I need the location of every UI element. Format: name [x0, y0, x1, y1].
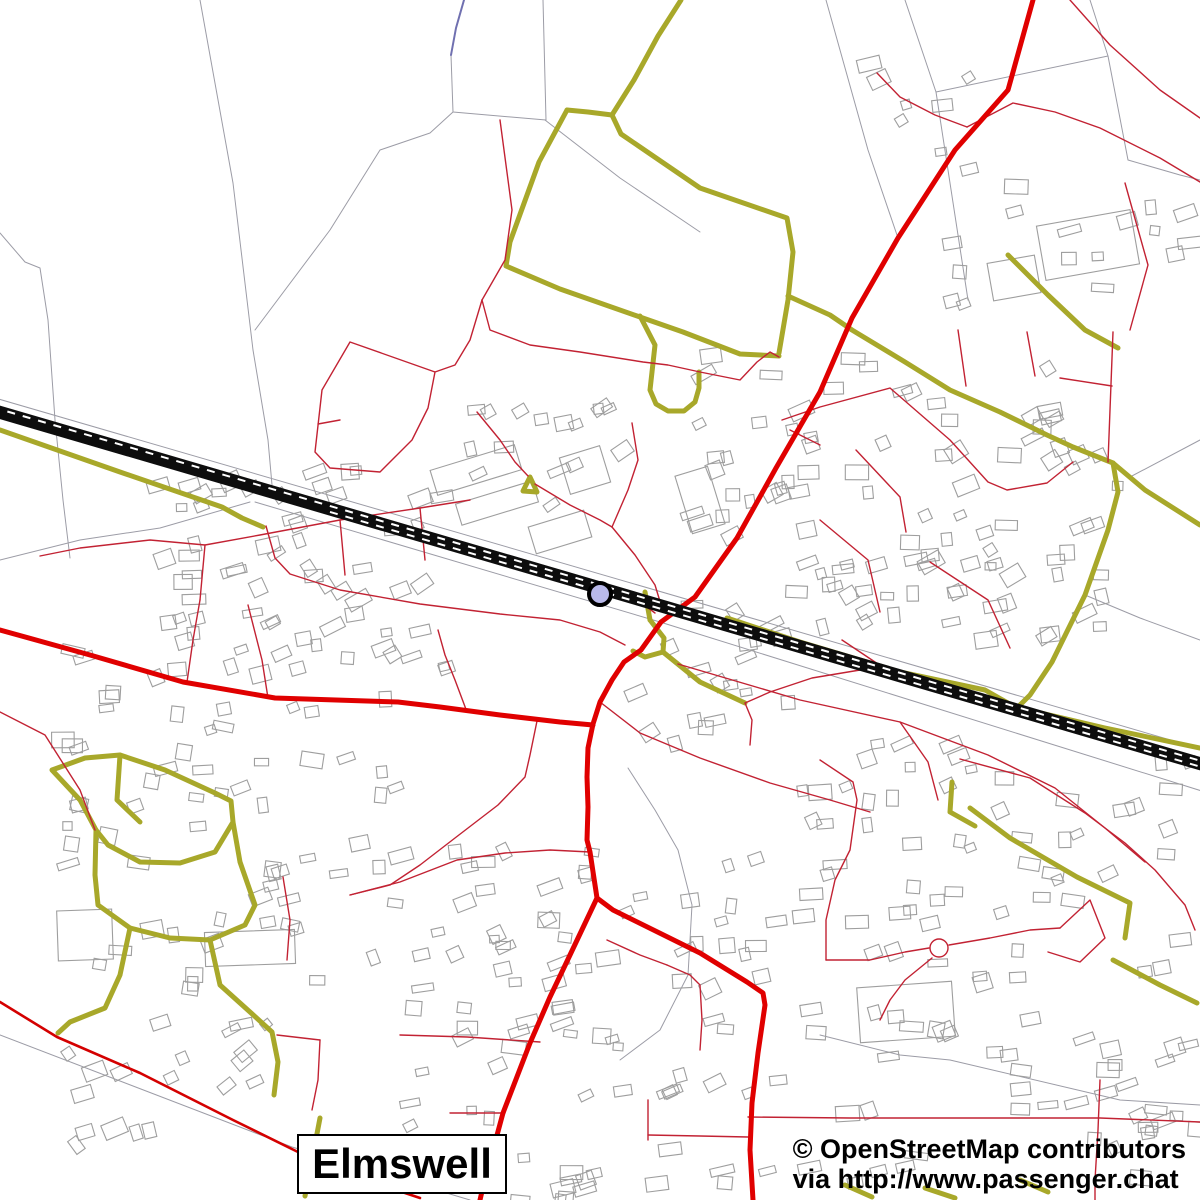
building-outline	[1145, 200, 1156, 215]
building-outline	[700, 347, 723, 364]
field-boundary-line	[820, 1035, 1200, 1105]
building-outline	[99, 690, 119, 704]
building-outline	[792, 909, 815, 924]
building-outline	[518, 1153, 530, 1162]
building-outline	[1166, 246, 1185, 263]
building-outline	[928, 959, 948, 967]
building-outline	[1011, 1103, 1030, 1115]
minor-red-road	[600, 702, 870, 812]
building-outline	[320, 617, 346, 637]
building-outline	[578, 1089, 594, 1102]
building-outline	[862, 817, 873, 832]
building-outline	[341, 652, 354, 665]
building-outline	[52, 732, 75, 748]
olive-road	[640, 316, 699, 411]
building-outline	[972, 973, 993, 993]
minor-red-road	[318, 420, 340, 424]
minor-red-road	[745, 703, 752, 745]
minor-red-road	[958, 330, 966, 386]
building-outline	[645, 1175, 669, 1192]
minor-red-road	[312, 1040, 320, 1110]
building-outline	[952, 474, 979, 497]
building-outline	[839, 781, 853, 793]
attribution: © OpenStreetMap contributors via http://…	[793, 1134, 1186, 1194]
building-outline	[295, 631, 312, 647]
minor-red-road	[678, 664, 1145, 862]
building-outline	[985, 563, 996, 571]
attribution-line-1: © OpenStreetMap contributors	[793, 1134, 1186, 1164]
building-outline	[1100, 1040, 1122, 1059]
stream-line	[451, 0, 464, 55]
building-outline	[719, 938, 736, 954]
building-outline	[1062, 252, 1077, 265]
building-outline	[1155, 1054, 1175, 1067]
building-outline	[1153, 960, 1172, 976]
building-outline	[508, 1024, 530, 1039]
building-outline	[805, 812, 822, 829]
building-outline	[1092, 252, 1104, 261]
building-outline	[242, 608, 262, 618]
minor-red-road	[612, 423, 638, 527]
building-outline	[174, 574, 192, 589]
minor-red-road	[826, 948, 929, 960]
building-outline	[163, 1070, 178, 1085]
field-boundary-line	[255, 112, 453, 330]
building-outline	[725, 898, 737, 914]
building-outline	[216, 702, 231, 716]
building-outline	[1036, 627, 1057, 646]
building-outline	[99, 704, 114, 713]
building-outline	[1020, 1011, 1041, 1026]
building-outline	[1061, 893, 1085, 908]
building-outline	[575, 963, 591, 974]
building-outline	[859, 361, 877, 372]
minor-red-road	[1070, 0, 1200, 118]
building-outline	[613, 1042, 623, 1050]
building-outline	[633, 892, 648, 902]
building-outline	[722, 859, 734, 873]
building-outline	[260, 916, 276, 929]
building-outline	[881, 592, 894, 600]
building-outline	[995, 520, 1017, 530]
minor-red-road	[40, 540, 205, 556]
building-outline	[175, 1051, 189, 1066]
minor-red-road	[745, 670, 860, 703]
building-outline	[1070, 828, 1084, 840]
building-outline	[446, 945, 464, 962]
building-outline	[611, 440, 635, 462]
minor-red-road	[248, 605, 268, 698]
building-outline	[349, 835, 370, 852]
building-outline	[176, 504, 187, 512]
building-outline	[1041, 450, 1063, 471]
building-outline	[563, 1029, 577, 1038]
building-outline	[376, 766, 387, 778]
building-outline	[230, 780, 250, 796]
building-outline	[680, 506, 704, 520]
building-outline	[941, 414, 957, 426]
building-outline	[710, 1164, 735, 1177]
building-outline	[815, 568, 826, 580]
olive-road	[52, 755, 233, 863]
olive-road	[210, 940, 278, 1095]
field-boundary-line	[905, 0, 1108, 92]
building-outline	[329, 869, 348, 879]
building-outline	[735, 650, 757, 665]
building-outline	[887, 607, 900, 623]
building-outline	[1093, 622, 1106, 632]
building-outline	[246, 1075, 264, 1089]
building-outline	[983, 543, 998, 558]
building-outline	[249, 664, 272, 684]
olive-road	[970, 808, 1130, 938]
building-outline	[255, 536, 281, 555]
olive-road	[1008, 255, 1118, 348]
building-outline	[962, 71, 976, 84]
building-outline	[193, 765, 214, 775]
building-outline	[254, 758, 268, 765]
building-outline	[287, 701, 300, 713]
building-outline	[1047, 554, 1065, 565]
building-outline	[796, 555, 818, 570]
building-outline	[534, 413, 549, 426]
map-canvas[interactable]: Elmswell © OpenStreetMap contributors vi…	[0, 0, 1200, 1200]
building-outline	[510, 1194, 530, 1200]
field-boundary-line	[936, 92, 968, 300]
attribution-line-2: via http://www.passenger.chat	[793, 1164, 1186, 1194]
building-outline	[1150, 226, 1160, 236]
building-outline	[1116, 1077, 1138, 1091]
building-outline	[1173, 204, 1197, 223]
building-outline	[904, 552, 928, 566]
building-outline	[412, 983, 434, 993]
building-outline	[714, 916, 728, 927]
building-outline	[673, 1068, 687, 1084]
building-outline	[752, 968, 771, 985]
building-outline	[888, 1010, 905, 1024]
building-outline	[991, 802, 1009, 820]
minor-red-road	[1060, 378, 1112, 386]
building-outline	[1033, 892, 1050, 902]
building-outline	[658, 1142, 682, 1157]
map-svg	[0, 0, 1200, 1200]
building-outline	[798, 465, 819, 479]
field-boundary-line	[620, 768, 692, 1060]
field-boundary-line	[1130, 440, 1200, 477]
olive-road	[1113, 463, 1200, 525]
building-outline	[257, 797, 268, 813]
building-outline	[857, 749, 877, 769]
building-outline	[1004, 179, 1028, 194]
building-outline	[277, 893, 300, 907]
building-outline	[71, 1084, 95, 1103]
building-outline	[150, 1014, 171, 1031]
building-outline	[182, 981, 200, 996]
building-outline	[345, 606, 365, 623]
building-outline	[692, 418, 706, 431]
building-outline	[941, 533, 953, 547]
building-outline	[175, 743, 192, 761]
building-outline	[300, 559, 317, 577]
building-outline	[1012, 944, 1024, 958]
minor-red-road	[607, 940, 667, 965]
building-outline	[983, 599, 1008, 614]
building-outline	[945, 887, 963, 897]
building-outline	[248, 578, 268, 598]
building-outline	[189, 793, 204, 803]
building-outline	[190, 821, 207, 832]
building-outline	[1157, 849, 1175, 860]
olive-road	[58, 928, 130, 1033]
building-outline	[1056, 792, 1079, 808]
building-outline	[260, 615, 280, 630]
building-outline	[1094, 588, 1109, 605]
place-label: Elmswell	[312, 1140, 492, 1188]
building-outline	[799, 888, 823, 901]
building-outline	[304, 706, 319, 719]
building-outline	[142, 1122, 157, 1139]
building-outline	[300, 853, 316, 863]
building-outline	[160, 615, 177, 631]
building-outline	[748, 851, 765, 866]
building-outline	[862, 793, 875, 810]
building-outline	[300, 751, 324, 769]
building-outline	[681, 893, 700, 909]
building-outline	[217, 1077, 236, 1095]
building-outline	[310, 976, 325, 986]
building-outline	[1060, 545, 1075, 561]
building-outline	[488, 1057, 508, 1075]
olive-road	[950, 782, 975, 826]
building-outline	[494, 441, 514, 453]
building-outline	[889, 906, 911, 920]
building-outline	[717, 1024, 734, 1035]
minor-red-road	[482, 120, 512, 300]
building-outline	[57, 858, 80, 871]
station-marker[interactable]	[589, 583, 611, 605]
minor-red-road	[350, 850, 590, 895]
building-outline	[472, 856, 496, 867]
building-outline	[1145, 1104, 1168, 1115]
building-outline	[1057, 224, 1081, 238]
building-outline	[371, 639, 396, 658]
building-outline	[387, 898, 403, 908]
building-outline	[373, 860, 385, 874]
building-outline	[1009, 972, 1026, 983]
building-outline	[964, 842, 976, 853]
building-outline	[101, 1117, 129, 1140]
building-outline	[824, 382, 844, 394]
olive-road	[95, 822, 255, 940]
building-outline	[1188, 1121, 1200, 1137]
building-outline	[739, 947, 751, 961]
building-outline	[303, 463, 327, 480]
building-outline	[366, 949, 380, 966]
olive-road	[663, 652, 745, 703]
large-building-outline	[675, 466, 725, 533]
building-outline	[170, 706, 184, 723]
building-outline	[956, 298, 971, 311]
building-outline	[927, 398, 946, 410]
building-outline	[891, 736, 913, 752]
building-outline	[388, 781, 404, 793]
building-outline	[800, 1002, 823, 1017]
field-boundary-line	[0, 502, 250, 560]
building-outline	[592, 1028, 611, 1044]
building-outline	[234, 1040, 258, 1063]
building-outline	[400, 1098, 421, 1109]
building-outline	[1091, 283, 1114, 293]
building-outline	[405, 1000, 422, 1016]
main-red-road	[597, 898, 765, 1200]
building-outline	[997, 447, 1021, 463]
building-outline	[954, 510, 967, 521]
building-outline	[493, 961, 512, 977]
field-boundary-line	[1085, 595, 1200, 640]
large-building-outline	[857, 981, 956, 1042]
field-boundary-line	[826, 0, 898, 238]
building-outline	[994, 906, 1009, 920]
olive-road	[1113, 960, 1197, 1003]
minor-red-road	[315, 300, 482, 472]
building-outline	[902, 837, 921, 850]
building-outline	[512, 403, 529, 419]
building-outline	[223, 658, 238, 676]
building-outline	[1052, 567, 1064, 582]
building-outline	[976, 525, 994, 540]
building-outline	[965, 765, 977, 774]
large-building-outline	[528, 510, 592, 554]
building-outline	[448, 844, 462, 859]
building-outline	[457, 1002, 472, 1014]
building-outline	[786, 585, 808, 598]
building-outline	[468, 404, 486, 415]
building-outline	[1010, 1063, 1031, 1077]
building-outline	[401, 650, 422, 663]
building-outline	[173, 612, 187, 624]
building-outline	[907, 586, 919, 601]
building-outline	[64, 836, 80, 852]
building-outline	[942, 616, 961, 627]
building-outline	[930, 894, 945, 906]
building-outline	[576, 1170, 597, 1190]
building-outline	[409, 624, 431, 638]
building-outline	[760, 370, 782, 380]
building-outline	[453, 893, 477, 913]
minor-red-road	[187, 600, 200, 682]
building-outline	[905, 762, 915, 772]
building-outline	[920, 915, 941, 931]
building-outline	[412, 948, 430, 962]
building-outline	[317, 574, 336, 594]
building-outline	[960, 162, 979, 176]
building-outline	[816, 618, 829, 635]
building-outline	[68, 1136, 86, 1155]
building-outline	[411, 573, 434, 595]
building-outline	[877, 1051, 899, 1062]
building-outline	[337, 752, 356, 765]
building-outline	[699, 978, 722, 1000]
building-outline	[918, 509, 932, 523]
minor-red-road	[535, 484, 612, 527]
building-outline	[1159, 819, 1178, 838]
building-outline	[234, 644, 248, 655]
minor-red-road	[820, 520, 880, 612]
building-outline	[129, 1124, 143, 1141]
building-outline	[558, 932, 572, 943]
building-outline	[431, 927, 445, 937]
minor-red-road	[1048, 900, 1105, 962]
building-outline	[501, 1039, 526, 1055]
building-outline	[808, 784, 832, 801]
building-outline	[894, 114, 908, 128]
building-outline	[1169, 932, 1192, 947]
building-outline	[817, 819, 834, 830]
large-building-outline	[1036, 210, 1139, 281]
building-outline	[720, 451, 733, 466]
building-outline	[886, 790, 898, 806]
building-outline	[153, 548, 176, 569]
building-outline	[167, 662, 186, 677]
building-outline	[537, 878, 563, 897]
minor-red-road	[949, 928, 1060, 945]
building-outline	[403, 1119, 418, 1133]
large-building-outline	[57, 909, 114, 961]
building-outline	[271, 645, 292, 662]
building-outline	[1164, 1037, 1186, 1058]
minor-red-road	[1027, 332, 1035, 376]
building-outline	[974, 630, 998, 649]
building-outline	[1038, 1101, 1058, 1110]
building-outline	[550, 1017, 573, 1032]
building-outline	[1098, 865, 1118, 883]
building-outline	[1018, 856, 1041, 871]
building-outline	[867, 1005, 882, 1021]
building-outline	[415, 1067, 429, 1077]
building-outline	[906, 880, 920, 894]
building-outline	[613, 1084, 632, 1097]
building-outline	[871, 739, 885, 750]
building-outline	[1064, 1096, 1088, 1110]
building-outline	[845, 915, 868, 928]
building-outline	[554, 414, 574, 431]
building-outline	[475, 883, 495, 896]
building-outline	[388, 847, 414, 865]
building-outline	[595, 950, 620, 967]
building-outline	[867, 69, 892, 91]
building-outline	[932, 99, 953, 113]
building-outline	[539, 911, 557, 927]
building-outline	[901, 383, 922, 402]
minor-red-road	[648, 1135, 748, 1137]
field-boundary-line	[200, 0, 272, 485]
building-outline	[289, 661, 306, 676]
building-outline	[464, 441, 477, 457]
building-outline	[752, 416, 768, 429]
building-outline	[740, 688, 752, 697]
minor-red-road	[277, 1035, 320, 1040]
building-outline	[353, 563, 373, 575]
olive-road	[1018, 463, 1118, 707]
building-outline	[543, 497, 560, 512]
building-outline	[311, 639, 322, 652]
building-outline	[292, 533, 306, 549]
building-outline	[796, 520, 817, 539]
building-outline	[182, 594, 206, 605]
field-boundary-line	[1108, 56, 1200, 180]
building-outline	[374, 787, 387, 803]
building-outline	[703, 1073, 726, 1093]
